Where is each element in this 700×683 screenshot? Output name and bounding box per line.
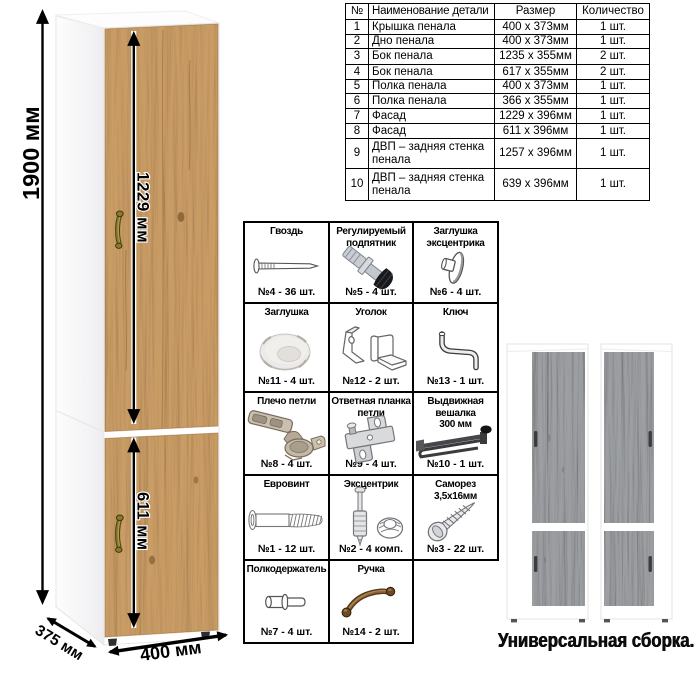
svg-text:611 мм: 611 мм <box>134 492 152 551</box>
svg-text:1229 мм: 1229 мм <box>134 172 153 243</box>
svg-text:1900 мм: 1900 мм <box>18 106 44 200</box>
svg-text:375 мм: 375 мм <box>32 622 86 664</box>
